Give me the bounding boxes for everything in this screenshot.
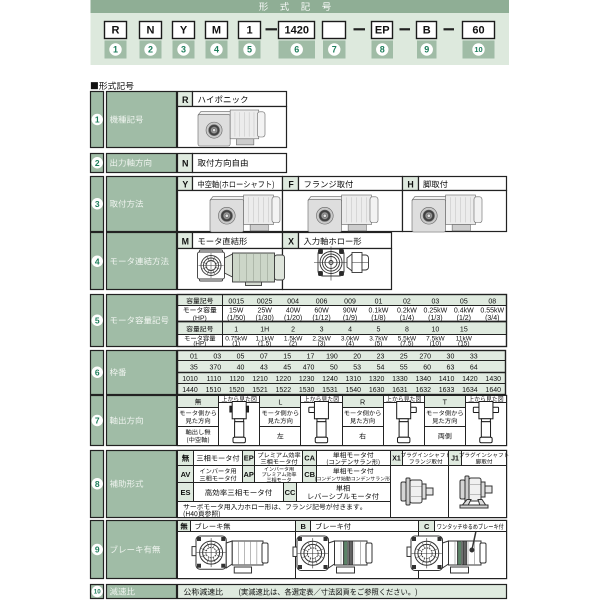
svg-text:(15): (15) bbox=[458, 341, 470, 348]
svg-text:4: 4 bbox=[348, 327, 352, 334]
svg-text:55: 55 bbox=[400, 364, 408, 371]
svg-text:1521: 1521 bbox=[252, 387, 268, 394]
svg-text:004: 004 bbox=[287, 298, 299, 305]
svg-text:6: 6 bbox=[294, 45, 299, 55]
svg-text:5: 5 bbox=[247, 45, 252, 55]
svg-text:1240: 1240 bbox=[322, 376, 338, 383]
svg-text:006: 006 bbox=[316, 298, 328, 305]
svg-text:B: B bbox=[301, 522, 307, 531]
svg-text:9: 9 bbox=[424, 45, 429, 55]
svg-text:1640: 1640 bbox=[485, 387, 501, 394]
svg-text:8: 8 bbox=[405, 327, 409, 334]
svg-text:370: 370 bbox=[209, 364, 221, 371]
svg-text:1410: 1410 bbox=[439, 376, 455, 383]
svg-text:J1: J1 bbox=[451, 456, 459, 463]
svg-text:N: N bbox=[182, 158, 189, 168]
svg-text:1310: 1310 bbox=[345, 376, 361, 383]
svg-text:(1/20): (1/20) bbox=[284, 315, 302, 322]
svg-text:R: R bbox=[182, 95, 189, 105]
svg-text:64: 64 bbox=[470, 364, 478, 371]
svg-text:(3/4): (3/4) bbox=[485, 315, 499, 322]
svg-text:(1/50): (1/50) bbox=[227, 315, 245, 322]
svg-text:0015: 0015 bbox=[228, 298, 244, 305]
svg-text:T: T bbox=[443, 397, 448, 406]
svg-text:(7.5): (7.5) bbox=[400, 341, 413, 348]
svg-text:10: 10 bbox=[94, 589, 101, 596]
svg-text:1340: 1340 bbox=[415, 376, 431, 383]
svg-text:8: 8 bbox=[380, 45, 385, 55]
svg-text:0.25kW: 0.25kW bbox=[424, 308, 448, 315]
svg-text:08: 08 bbox=[488, 298, 496, 305]
svg-text:1531: 1531 bbox=[322, 387, 338, 394]
svg-text:1634: 1634 bbox=[462, 387, 478, 394]
svg-text:40W: 40W bbox=[286, 308, 301, 315]
svg-text:60: 60 bbox=[472, 25, 484, 37]
svg-text:Y: Y bbox=[180, 25, 188, 37]
svg-text:20: 20 bbox=[353, 353, 361, 360]
svg-text:60: 60 bbox=[423, 364, 431, 371]
svg-text:1: 1 bbox=[246, 25, 252, 37]
svg-text:009: 009 bbox=[344, 298, 356, 305]
svg-text:M: M bbox=[212, 25, 221, 37]
svg-text:0.2kW: 0.2kW bbox=[397, 308, 417, 315]
svg-text:1: 1 bbox=[234, 327, 238, 334]
svg-text:(2): (2) bbox=[289, 341, 297, 348]
svg-text:CC: CC bbox=[285, 488, 296, 497]
svg-text:(1/30): (1/30) bbox=[256, 315, 274, 322]
svg-text:40: 40 bbox=[237, 364, 245, 371]
svg-text:R: R bbox=[112, 25, 120, 37]
svg-text:190: 190 bbox=[326, 353, 338, 360]
svg-text:54: 54 bbox=[377, 364, 385, 371]
svg-text:25W: 25W bbox=[257, 308, 272, 315]
svg-text:4: 4 bbox=[214, 45, 219, 55]
svg-text:7: 7 bbox=[332, 45, 337, 55]
svg-text:ES: ES bbox=[180, 488, 190, 497]
svg-text:(HP): (HP) bbox=[193, 341, 206, 348]
svg-text:1530: 1530 bbox=[299, 387, 315, 394]
svg-text:1430: 1430 bbox=[485, 376, 501, 383]
svg-text:(1.5): (1.5) bbox=[258, 341, 271, 348]
svg-text:9: 9 bbox=[95, 545, 100, 555]
svg-text:1420: 1420 bbox=[285, 25, 309, 37]
svg-text:01: 01 bbox=[375, 298, 383, 305]
svg-text:3: 3 bbox=[181, 45, 186, 55]
svg-text:2: 2 bbox=[148, 45, 153, 55]
svg-text:AP: AP bbox=[243, 470, 253, 479]
svg-text:2: 2 bbox=[291, 327, 295, 334]
svg-text:1420: 1420 bbox=[462, 376, 478, 383]
svg-text:(1/9): (1/9) bbox=[343, 315, 357, 322]
svg-text:(4): (4) bbox=[346, 341, 354, 348]
svg-text:(10): (10) bbox=[430, 341, 442, 348]
svg-text:63: 63 bbox=[447, 364, 455, 371]
svg-text:3: 3 bbox=[320, 327, 324, 334]
svg-text:(3): (3) bbox=[318, 341, 326, 348]
svg-text:1520: 1520 bbox=[229, 387, 245, 394]
svg-text:(1/2): (1/2) bbox=[457, 315, 471, 322]
svg-text:EP: EP bbox=[244, 454, 254, 463]
svg-text:10: 10 bbox=[474, 45, 482, 54]
svg-text:7: 7 bbox=[95, 416, 100, 426]
svg-text:05: 05 bbox=[237, 353, 245, 360]
svg-text:X: X bbox=[288, 237, 294, 247]
svg-text:03: 03 bbox=[213, 353, 221, 360]
svg-text:1633: 1633 bbox=[439, 387, 455, 394]
svg-text:(1/12): (1/12) bbox=[312, 315, 330, 322]
svg-text:(1/4): (1/4) bbox=[400, 315, 414, 322]
svg-text:3: 3 bbox=[95, 199, 100, 209]
svg-text:1632: 1632 bbox=[415, 387, 431, 394]
svg-text:270: 270 bbox=[419, 353, 431, 360]
svg-text:0.55kW: 0.55kW bbox=[480, 308, 504, 315]
svg-text:02: 02 bbox=[403, 298, 411, 305]
svg-text:90W: 90W bbox=[343, 308, 358, 315]
svg-text:15: 15 bbox=[460, 327, 468, 334]
svg-text:4: 4 bbox=[95, 256, 100, 266]
svg-text:470: 470 bbox=[303, 364, 315, 371]
svg-text:60W: 60W bbox=[314, 308, 329, 315]
svg-text:Y: Y bbox=[182, 180, 188, 190]
svg-text:5: 5 bbox=[377, 327, 381, 334]
svg-text:1230: 1230 bbox=[299, 376, 315, 383]
svg-text:35: 35 bbox=[190, 364, 198, 371]
svg-text:53: 53 bbox=[353, 364, 361, 371]
svg-text:30: 30 bbox=[447, 353, 455, 360]
svg-text:0.1kW: 0.1kW bbox=[369, 308, 389, 315]
svg-text:L: L bbox=[278, 397, 282, 406]
svg-text:5: 5 bbox=[95, 315, 100, 325]
svg-text:(1/3): (1/3) bbox=[428, 315, 442, 322]
svg-text:1: 1 bbox=[113, 45, 118, 55]
svg-text:25: 25 bbox=[400, 353, 408, 360]
svg-text:1: 1 bbox=[95, 115, 100, 125]
svg-text:10: 10 bbox=[431, 327, 439, 334]
svg-text:H: H bbox=[407, 180, 413, 190]
svg-text:33: 33 bbox=[470, 353, 478, 360]
svg-text:1540: 1540 bbox=[345, 387, 361, 394]
svg-text:0025: 0025 bbox=[257, 298, 273, 305]
svg-text:CB: CB bbox=[304, 470, 315, 479]
svg-text:EP: EP bbox=[375, 25, 390, 37]
svg-text:1110: 1110 bbox=[207, 376, 222, 383]
svg-text:R: R bbox=[360, 397, 365, 406]
svg-text:43: 43 bbox=[260, 364, 268, 371]
svg-text:1320: 1320 bbox=[369, 376, 385, 383]
svg-text:6: 6 bbox=[95, 367, 100, 377]
svg-text:03: 03 bbox=[431, 298, 439, 305]
svg-text:AV: AV bbox=[181, 470, 191, 479]
svg-text:50: 50 bbox=[330, 364, 338, 371]
svg-text:1510: 1510 bbox=[206, 387, 222, 394]
svg-text:1220: 1220 bbox=[276, 376, 292, 383]
svg-text:C: C bbox=[424, 522, 430, 531]
svg-text:1210: 1210 bbox=[252, 376, 268, 383]
svg-text:23: 23 bbox=[377, 353, 385, 360]
svg-text:01: 01 bbox=[190, 353, 198, 360]
svg-text:05: 05 bbox=[460, 298, 468, 305]
svg-text:(HP): (HP) bbox=[193, 315, 207, 322]
svg-text:M: M bbox=[182, 237, 189, 247]
svg-text:(5): (5) bbox=[374, 341, 382, 348]
svg-text:N: N bbox=[147, 25, 155, 37]
svg-text:CA: CA bbox=[304, 454, 315, 463]
svg-text:1H: 1H bbox=[260, 327, 269, 334]
svg-text:(1/8): (1/8) bbox=[371, 315, 385, 322]
svg-text:1630: 1630 bbox=[369, 387, 385, 394]
svg-text:F: F bbox=[288, 180, 294, 190]
svg-text:1010: 1010 bbox=[182, 376, 198, 383]
svg-text:07: 07 bbox=[260, 353, 268, 360]
svg-text:8: 8 bbox=[95, 479, 100, 489]
svg-text:1522: 1522 bbox=[276, 387, 292, 394]
svg-text:(1): (1) bbox=[232, 341, 240, 348]
svg-text:17: 17 bbox=[307, 353, 315, 360]
svg-text:15W: 15W bbox=[229, 308, 244, 315]
svg-text:2: 2 bbox=[95, 158, 100, 168]
svg-text:B: B bbox=[423, 25, 431, 37]
svg-text:1440: 1440 bbox=[182, 387, 198, 394]
svg-text:X1: X1 bbox=[392, 456, 401, 463]
svg-text:1631: 1631 bbox=[392, 387, 408, 394]
svg-text:15: 15 bbox=[283, 353, 291, 360]
svg-text:1330: 1330 bbox=[392, 376, 408, 383]
svg-text:45: 45 bbox=[283, 364, 291, 371]
svg-text:1120: 1120 bbox=[229, 376, 244, 383]
svg-text:0.4kW: 0.4kW bbox=[454, 308, 474, 315]
